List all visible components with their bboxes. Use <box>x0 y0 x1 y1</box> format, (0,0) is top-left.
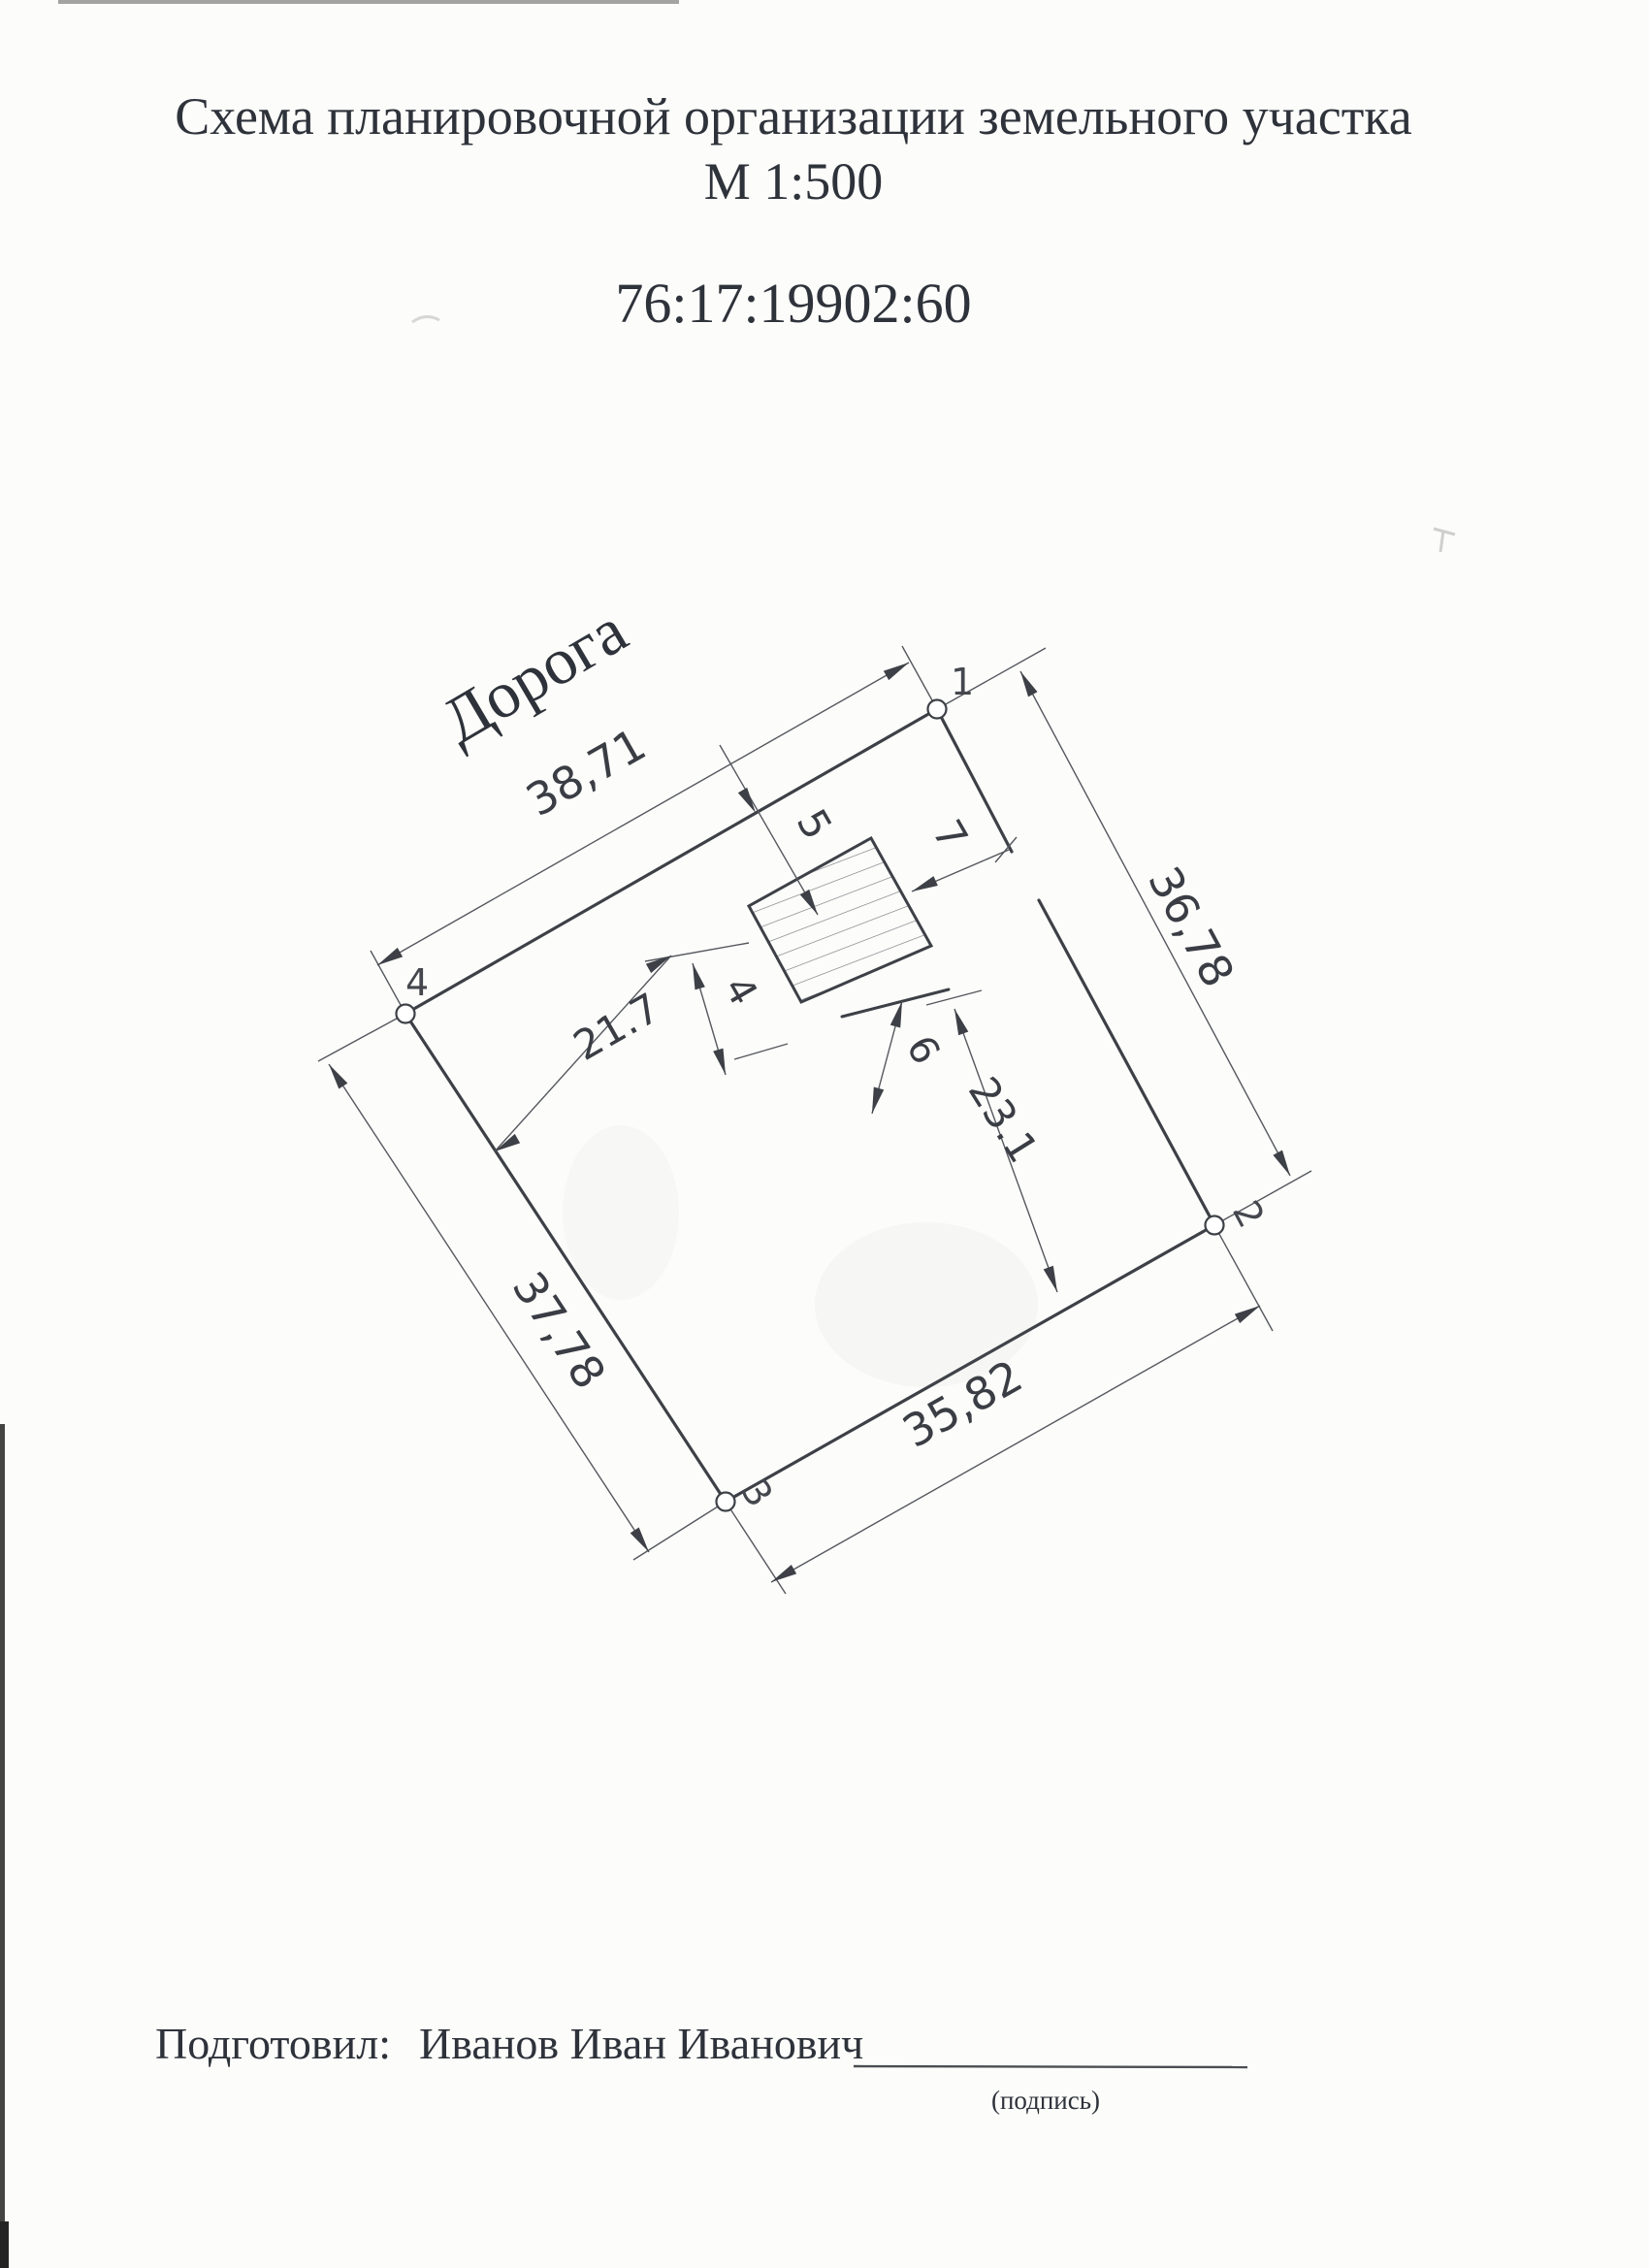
dim-top-side: 38,71 <box>517 718 654 826</box>
page-title: Схема планировочной организации земельно… <box>175 87 1411 146</box>
dim-setback-small-bottom: 6 <box>897 1028 949 1072</box>
scan-artifacts <box>0 0 1455 2268</box>
prepared-by-name: Иванов Иван Иванович <box>419 2019 863 2068</box>
building-outline <box>749 838 931 1002</box>
prepared-by-label: Подготовил: <box>155 2019 391 2068</box>
corner-label-1: 1 <box>951 661 974 703</box>
signature-caption: (подпись) <box>991 2086 1100 2115</box>
corner-label-3: 3 <box>732 1472 781 1514</box>
dimension-arrowheads <box>324 658 1294 1586</box>
corner-label-2: 2 <box>1224 1194 1273 1235</box>
corner-label-4: 4 <box>405 961 429 1004</box>
dim-setback-right: 7 <box>923 812 978 859</box>
scanned-site-plan-page: Схема планировочной организации земельно… <box>0 0 1649 2268</box>
prepared-by-line: Подготовил:Иванов Иван Иванович <box>155 2019 863 2068</box>
dim-left-to-building: 21.7 <box>566 984 668 1070</box>
dimension-lines <box>329 663 1290 1582</box>
signature-line <box>854 2066 1247 2067</box>
scale-label: М 1:500 <box>704 152 884 211</box>
dim-setback-small-left: 4 <box>715 969 766 1013</box>
site-plan-canvas: Схема планировочной организации земельно… <box>0 0 1649 2268</box>
dim-setback-road: 5 <box>788 801 842 848</box>
cadastral-number: 76:17:19902:60 <box>615 272 971 335</box>
dim-building-to-bottom: 23.1 <box>959 1069 1048 1171</box>
dim-right-side: 36,78 <box>1138 859 1245 996</box>
